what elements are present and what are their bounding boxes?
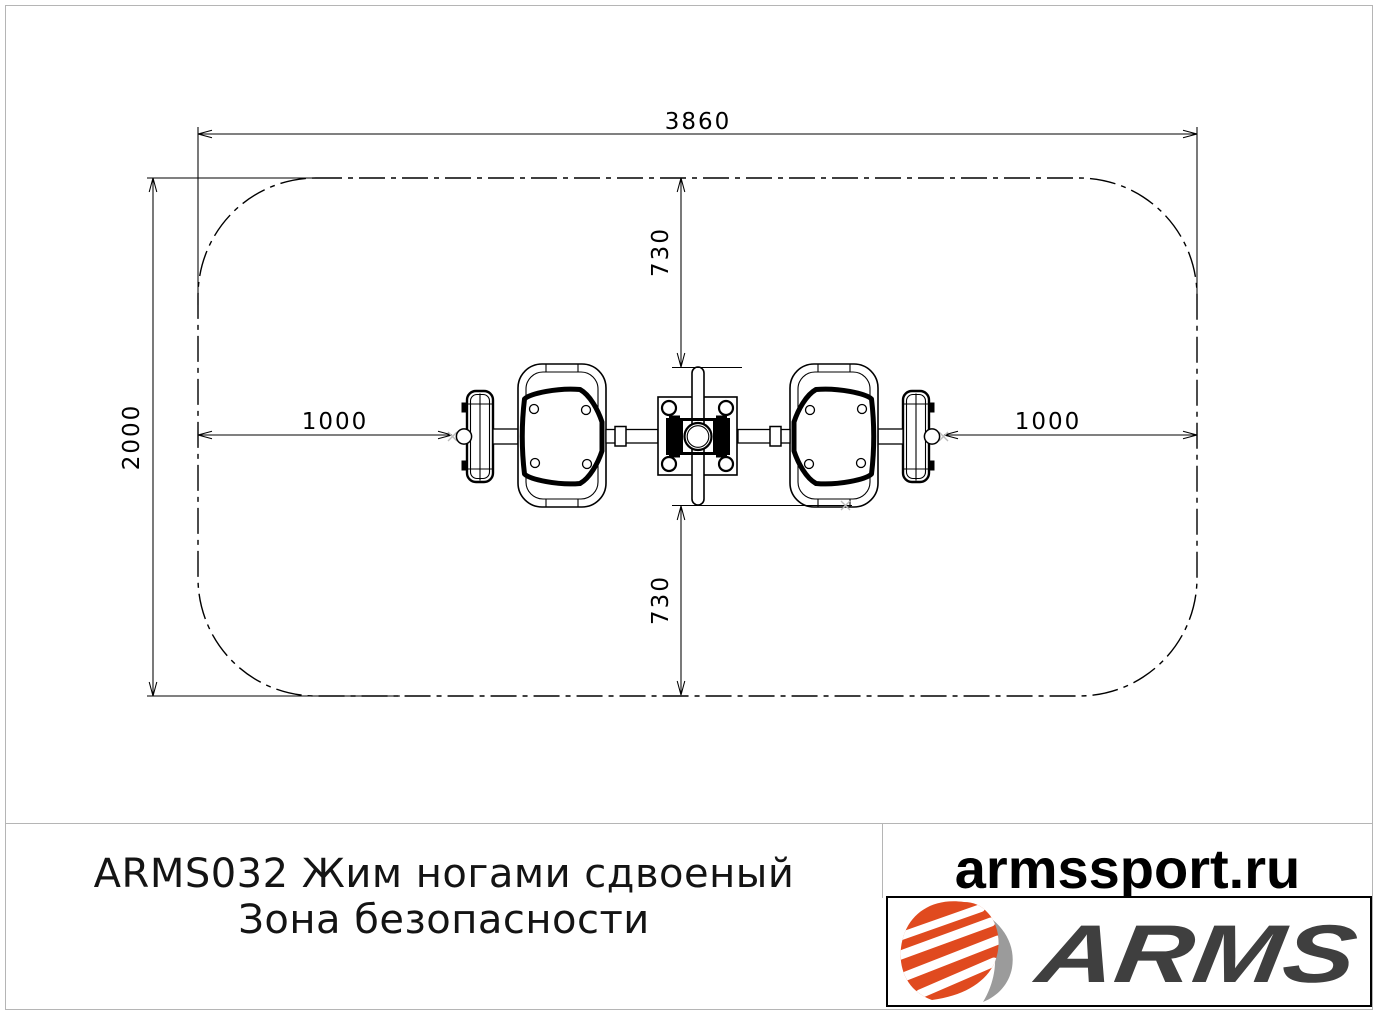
machine-center-assembly <box>658 367 737 505</box>
website-text: armssport.ru <box>882 836 1373 901</box>
dim-label-width: 3860 <box>665 109 732 135</box>
arms-logo: ARMS <box>888 898 1370 1005</box>
dimension-height-2000: 2000 <box>119 178 400 696</box>
arms-wordmark: ARMS <box>1029 908 1363 1000</box>
center-post <box>685 423 712 450</box>
foot-plate-pivot <box>456 429 471 444</box>
dim-label-height: 2000 <box>119 404 145 471</box>
dimension-offset-right-1000: 1000 <box>944 409 1197 439</box>
dimension-offset-top-730: 730 <box>648 178 685 367</box>
drawing-sheet: 3860 2000 730 730 1000 <box>0 0 1380 1015</box>
seat-cushion <box>522 389 602 484</box>
dim-label-offset-left: 1000 <box>302 409 369 435</box>
drawing-title-line2: Зона безопасности <box>6 897 882 943</box>
dim-label-offset-right: 1000 <box>1015 409 1082 435</box>
arms-wordmark-text: ARMS <box>1029 908 1363 1000</box>
dim-label-offset-top: 730 <box>648 227 674 277</box>
dimension-width-3860: 3860 <box>198 109 1197 305</box>
arms-logo-box: ARMS <box>886 896 1372 1007</box>
drawing-title-line1: ARMS032 Жим ногами сдвоеный <box>6 851 882 897</box>
drawing-title: ARMS032 Жим ногами сдвоеный Зона безопас… <box>6 851 882 943</box>
dimension-offset-left-1000: 1000 <box>198 409 452 439</box>
dimension-offset-bottom-730: 730 <box>648 506 685 695</box>
machine-right-half <box>738 364 948 507</box>
machine-left-half <box>448 364 658 507</box>
titleblock-separator <box>6 823 1373 824</box>
dim-label-offset-bottom: 730 <box>648 575 674 625</box>
